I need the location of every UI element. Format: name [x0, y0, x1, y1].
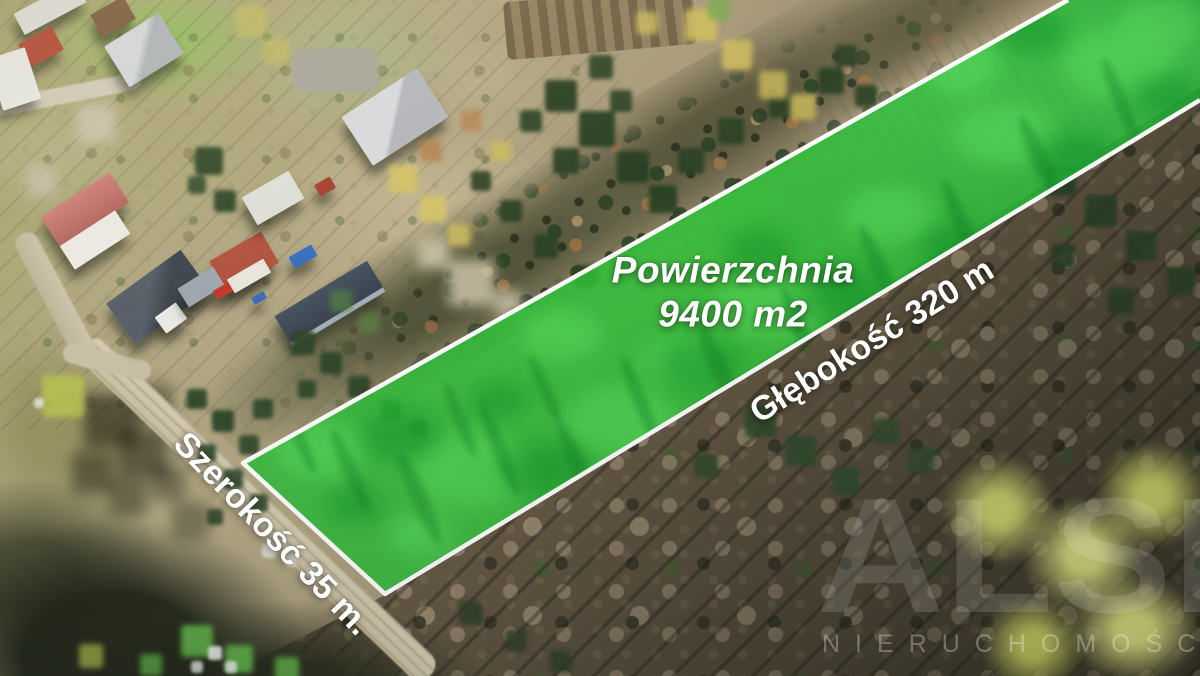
area-label-line2: 9400 m2	[612, 293, 854, 337]
brand-watermark-subtitle: NIERUCHOMOŚCI	[822, 630, 1200, 659]
area-label: Powierzchnia 9400 m2	[612, 249, 854, 338]
aerial-photo: Powierzchnia 9400 m2 Głębokość 320 m Sze…	[0, 0, 1200, 676]
area-label-line1: Powierzchnia	[612, 249, 854, 293]
brand-watermark: ALSER	[816, 474, 1200, 638]
